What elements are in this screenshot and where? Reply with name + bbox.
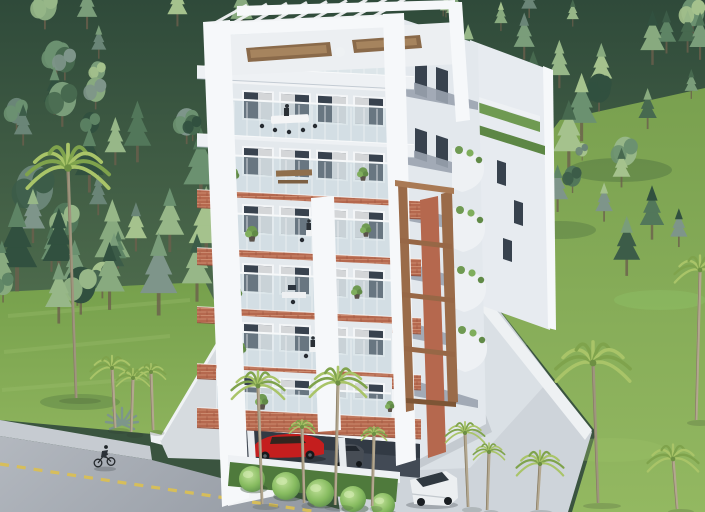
van-wheel: [417, 498, 425, 506]
wood-bench: [278, 180, 308, 184]
side-window: [514, 200, 523, 226]
chair: [273, 128, 277, 132]
person-body: [311, 340, 316, 347]
scene-canvas: [0, 0, 705, 512]
person-head: [311, 336, 315, 340]
architectural-render-image: [0, 0, 705, 512]
side-window: [497, 160, 506, 186]
chair: [304, 354, 308, 358]
wheel-hub: [263, 454, 267, 458]
chair: [301, 128, 305, 132]
grey-car: [334, 444, 364, 468]
rider-head: [104, 445, 108, 449]
screen: [288, 285, 296, 290]
person-body: [307, 223, 312, 230]
chair: [313, 124, 317, 128]
person-head: [285, 104, 289, 108]
chair: [300, 238, 304, 242]
wheel-hub: [308, 453, 312, 457]
side-window: [503, 238, 512, 262]
terrace-table: [335, 47, 345, 57]
person-body: [284, 108, 289, 116]
desk: [282, 292, 306, 298]
chair: [291, 300, 295, 304]
car-wheel: [356, 461, 362, 467]
van-wheel: [444, 497, 452, 505]
person-head: [307, 219, 311, 223]
wood-table: [276, 169, 312, 176]
chair: [287, 130, 291, 134]
car-windshield: [270, 436, 306, 444]
lawn-light-patch: [614, 290, 705, 310]
chair: [260, 124, 264, 128]
